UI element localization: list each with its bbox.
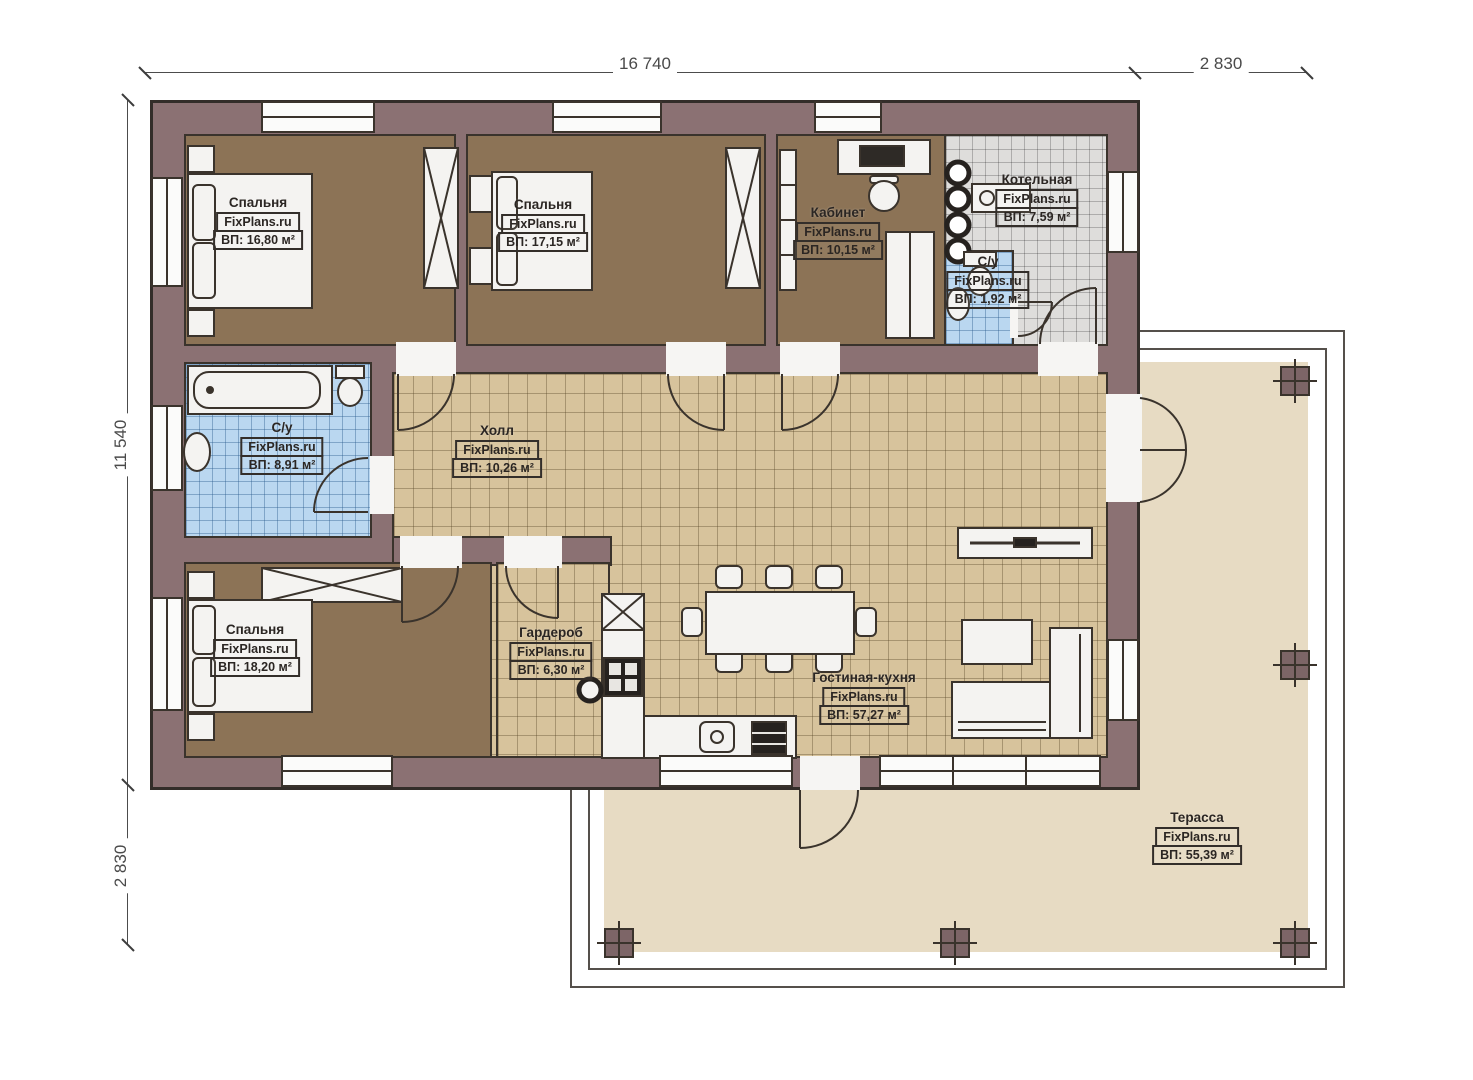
room-name: Спальня	[226, 622, 284, 637]
dining-table	[706, 592, 854, 654]
boiler-dial	[980, 191, 994, 205]
room-label-bathroom: С/у FixPlans.ru ВП: 8,91 м²	[240, 420, 323, 475]
pillow	[193, 243, 215, 298]
door-arc	[782, 374, 838, 430]
sofa-chaise	[1050, 628, 1092, 738]
burner	[625, 663, 637, 675]
room-name: Холл	[480, 423, 514, 438]
dimension-value-top-main: 16 740	[613, 54, 677, 74]
dimension-value-left-secondary: 2 830	[111, 839, 131, 894]
room-brand: FixPlans.ru	[822, 687, 905, 707]
room-name: Гостиная-кухня	[812, 670, 915, 685]
door-opening	[800, 756, 860, 790]
door-arc	[402, 566, 458, 622]
nightstand	[188, 310, 214, 336]
french-door-arc	[1140, 398, 1186, 450]
room-label-boiler-room: Котельная FixPlans.ru ВП: 7,59 м²	[995, 172, 1078, 227]
room-label-bedroom-3: Спальня FixPlans.ru ВП: 18,20 м²	[210, 622, 300, 677]
room-name: Гардероб	[519, 625, 583, 640]
sink-drain	[711, 731, 723, 743]
room-name: Спальня	[514, 197, 572, 212]
door-opening	[370, 456, 394, 514]
door-arc	[506, 566, 558, 618]
french-door-arc	[1140, 450, 1186, 502]
room-label-wardrobe-room: Гардероб FixPlans.ru ВП: 6,30 м²	[509, 625, 592, 680]
room-name: Кабинет	[811, 205, 866, 220]
bathtub-drain	[207, 387, 213, 393]
door-arc	[668, 374, 724, 430]
chair	[682, 608, 702, 636]
door-arc	[800, 790, 858, 848]
laptop-icon	[860, 146, 904, 166]
room-area: ВП: 10,15 м²	[793, 240, 883, 260]
entry-door-opening	[1106, 394, 1142, 502]
room-brand: FixPlans.ru	[455, 440, 538, 460]
chair	[716, 566, 742, 588]
toilet-tank	[336, 366, 364, 378]
nightstand	[188, 714, 214, 740]
plan-symbols-layer	[0, 0, 1473, 1080]
room-name: Котельная	[1002, 172, 1073, 187]
room-name: Спальня	[229, 195, 287, 210]
dishwasher-icon	[752, 722, 786, 754]
room-name: Терасса	[1170, 810, 1224, 825]
room-brand: FixPlans.ru	[946, 271, 1029, 291]
door-opening	[504, 536, 562, 568]
nightstand	[470, 176, 492, 212]
room-label-bedroom-2: Спальня FixPlans.ru ВП: 17,15 м²	[498, 197, 588, 252]
room-area: ВП: 17,15 м²	[498, 232, 588, 252]
burner	[625, 679, 637, 691]
room-brand: FixPlans.ru	[796, 222, 879, 242]
room-name: С/у	[271, 420, 292, 435]
toilet-icon	[338, 378, 362, 406]
room-brand: FixPlans.ru	[240, 437, 323, 457]
room-area: ВП: 7,59 м²	[996, 207, 1079, 227]
room-brand: FixPlans.ru	[1155, 827, 1238, 847]
boiler-pipe-icon	[947, 162, 969, 184]
chair	[766, 566, 792, 588]
room-label-office: Кабинет FixPlans.ru ВП: 10,15 м²	[793, 205, 883, 260]
room-label-living-kitchen: Гостиная-кухня FixPlans.ru ВП: 57,27 м²	[812, 670, 915, 725]
room-brand: FixPlans.ru	[216, 212, 299, 232]
room-area: ВП: 10,26 м²	[452, 458, 542, 478]
room-name: С/у	[977, 254, 998, 269]
room-brand: FixPlans.ru	[501, 214, 584, 234]
room-area: ВП: 16,80 м²	[213, 230, 303, 250]
boiler-pipe-icon	[947, 214, 969, 236]
sink-icon	[184, 433, 210, 471]
room-area: ВП: 55,39 м²	[1152, 845, 1242, 865]
burner	[609, 679, 621, 691]
dimension-value-top-secondary: 2 830	[1194, 54, 1249, 74]
floor-plan: Спальня FixPlans.ru ВП: 16,80 м² Спальня…	[0, 0, 1473, 1080]
chair	[856, 608, 876, 636]
burner	[609, 663, 621, 675]
door-opening	[400, 536, 462, 568]
room-area: ВП: 57,27 м²	[819, 705, 909, 725]
room-label-terrace: Терасса FixPlans.ru ВП: 55,39 м²	[1152, 810, 1242, 865]
dimension-value-left-main: 11 540	[111, 414, 131, 477]
room-area: ВП: 6,30 м²	[510, 660, 593, 680]
room-brand: FixPlans.ru	[213, 639, 296, 659]
boiler-pipe-icon	[947, 188, 969, 210]
door-arc	[398, 374, 454, 430]
nightstand	[188, 572, 214, 598]
door-opening	[780, 342, 840, 376]
room-brand: FixPlans.ru	[995, 189, 1078, 209]
room-label-bedroom-1: Спальня FixPlans.ru ВП: 16,80 м²	[213, 195, 303, 250]
chair	[816, 566, 842, 588]
door-opening	[1038, 342, 1098, 376]
coffee-table	[962, 620, 1032, 664]
pillow	[193, 185, 215, 240]
room-label-wc-small: С/у FixPlans.ru ВП: 1,92 м²	[946, 254, 1029, 309]
nightstand	[470, 248, 492, 284]
room-area: ВП: 1,92 м²	[947, 289, 1030, 309]
room-area: ВП: 18,20 м²	[210, 657, 300, 677]
tv-base	[1014, 538, 1036, 547]
room-brand: FixPlans.ru	[509, 642, 592, 662]
floor-drain-icon	[579, 679, 601, 701]
door-opening	[396, 342, 456, 376]
nightstand	[188, 146, 214, 172]
room-area: ВП: 8,91 м²	[241, 455, 324, 475]
door-opening	[666, 342, 726, 376]
room-label-hall: Холл FixPlans.ru ВП: 10,26 м²	[452, 423, 542, 478]
